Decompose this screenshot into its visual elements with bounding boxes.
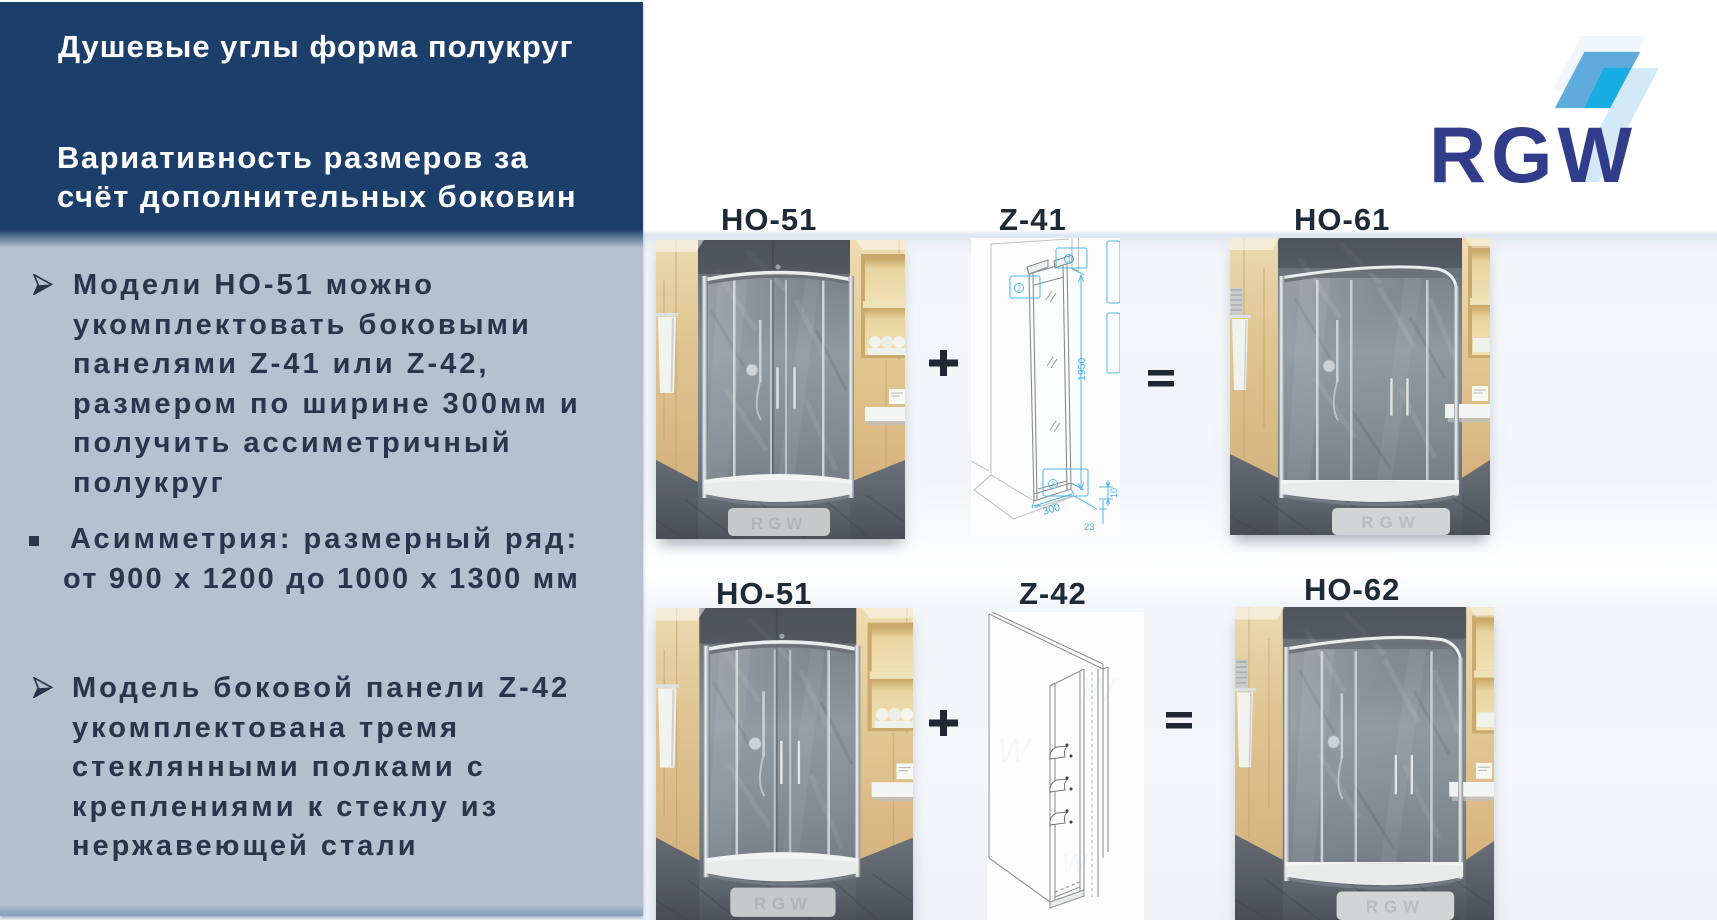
svg-text:W: W [997, 732, 1032, 770]
svg-text:RGW: RGW [754, 893, 812, 913]
svg-text:2: 2 [1017, 286, 1021, 293]
svg-text:W: W [1082, 672, 1117, 710]
svg-text:RGW: RGW [1429, 110, 1637, 190]
svg-text:w: w [1062, 842, 1089, 880]
svg-text:1950: 1950 [1076, 357, 1088, 381]
svg-text:1: 1 [1067, 257, 1071, 264]
svg-text:3: 3 [1051, 482, 1055, 489]
svg-text:10: 10 [1109, 488, 1119, 498]
svg-text:RGW: RGW [751, 514, 808, 533]
svg-text:23: 23 [1084, 522, 1095, 533]
svg-text:RGW: RGW [1366, 896, 1425, 917]
svg-text:RGW: RGW [1361, 513, 1421, 532]
